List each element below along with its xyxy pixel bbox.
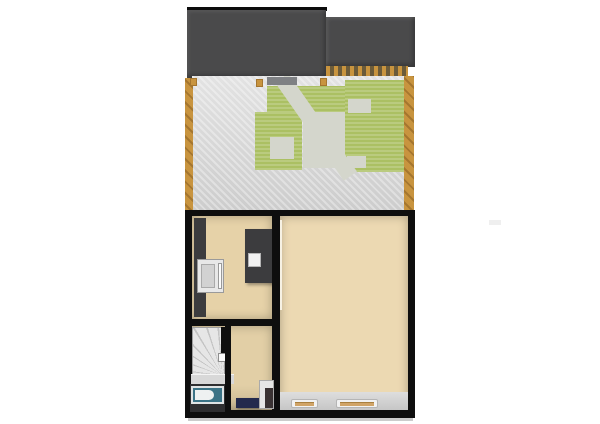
kitchen-floor — [192, 216, 272, 319]
bathtub — [191, 386, 224, 404]
fence-post — [256, 79, 263, 87]
oven-appliance — [197, 259, 224, 293]
hall-cabinet-front — [265, 388, 273, 408]
pergola-edge — [326, 66, 408, 76]
corner-sill-sliver — [489, 220, 501, 225]
fence-post — [190, 78, 197, 86]
garden-doormat — [267, 77, 297, 85]
window-sill-wood — [340, 402, 374, 406]
fence-right — [404, 76, 414, 212]
house-outline — [185, 210, 415, 418]
roof-left — [187, 10, 326, 78]
navy-sideboard — [236, 398, 260, 408]
floorplan-scene — [0, 0, 600, 424]
window-sill — [291, 399, 318, 408]
house-drop-shadow — [188, 418, 413, 421]
hall-cabinet — [259, 380, 274, 409]
bathroom-floor — [190, 384, 228, 412]
garden — [185, 76, 415, 212]
wall-highlight — [280, 220, 282, 310]
bathtub-basin — [195, 390, 214, 400]
fence-left — [185, 78, 193, 212]
roof-right — [326, 17, 415, 67]
island-sink — [248, 253, 261, 267]
window-sill-wood — [295, 402, 314, 406]
main-room-floor — [280, 216, 408, 410]
wall-bath-hall — [225, 326, 231, 412]
oven-handle — [218, 263, 222, 289]
fence-post — [320, 78, 327, 86]
paving-notch — [270, 137, 294, 159]
oven-door — [201, 264, 215, 288]
paving-notch — [348, 99, 371, 113]
window-sill — [336, 399, 378, 408]
